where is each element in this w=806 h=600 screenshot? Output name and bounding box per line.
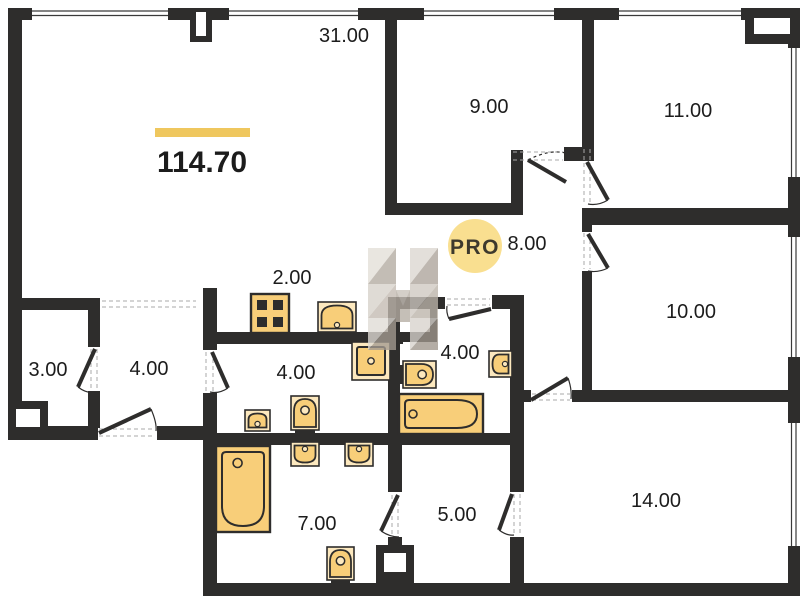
window-shape bbox=[168, 8, 172, 20]
window-shape bbox=[788, 44, 800, 181]
bath-c-sink-1-icon bbox=[291, 442, 319, 466]
shaft-notches-shape bbox=[754, 18, 790, 34]
walls-layer-shape bbox=[492, 295, 512, 309]
bath-c-tub-icon bbox=[216, 446, 270, 532]
window-shape bbox=[225, 8, 362, 20]
walls-layer-shape bbox=[388, 445, 402, 492]
bath-b-toilet-icon-shape bbox=[418, 370, 426, 378]
door-bathroom-4a bbox=[210, 352, 228, 393]
door-room-10-shape bbox=[588, 268, 608, 272]
room-area-label-kitchen-niche: 2.00 bbox=[273, 267, 312, 289]
door-bathroom-7-shape bbox=[381, 531, 399, 537]
total-area-label: 114.70 bbox=[157, 146, 247, 179]
stove-icon-shape bbox=[273, 317, 283, 327]
walls-layer-shape bbox=[524, 390, 531, 402]
window-shape bbox=[788, 419, 800, 423]
room-area-label-storage-3: 3.00 bbox=[29, 359, 68, 381]
room-area-label-room-5: 5.00 bbox=[438, 504, 477, 526]
window-shape bbox=[420, 8, 424, 20]
window-shape bbox=[788, 357, 800, 361]
bath-b-toilet-icon bbox=[393, 361, 436, 388]
stove-icon-shape bbox=[251, 294, 289, 333]
room-area-label-room-14: 14.00 bbox=[631, 490, 681, 512]
door-room-9-shape bbox=[528, 160, 566, 182]
window bbox=[615, 8, 745, 20]
door-room-9 bbox=[528, 152, 566, 182]
bath-c-sink-1-icon-shape bbox=[302, 446, 307, 451]
room-area-label-room-10: 10.00 bbox=[666, 301, 716, 323]
walls-layer-shape bbox=[203, 583, 800, 596]
bath-c-toilet-icon bbox=[327, 547, 354, 590]
window-shape bbox=[615, 8, 745, 20]
window bbox=[788, 233, 800, 361]
door-bathroom-7-shape bbox=[381, 495, 398, 531]
bath-b-tub-icon bbox=[399, 394, 483, 434]
walls-layer-shape bbox=[203, 393, 217, 433]
walls-layer-shape bbox=[788, 181, 800, 233]
shower-icon-shape bbox=[368, 358, 374, 364]
door-storage-3-shape bbox=[78, 349, 95, 387]
window-shape bbox=[788, 44, 800, 48]
room-area-label-bathroom-7: 7.00 bbox=[298, 513, 337, 535]
walls-layer-shape bbox=[572, 390, 587, 402]
window-shape bbox=[554, 8, 558, 20]
bath-c-toilet-icon-shape bbox=[336, 557, 344, 565]
stove-icon-shape bbox=[273, 300, 283, 310]
window-shape bbox=[28, 8, 32, 20]
window-shape bbox=[420, 8, 558, 20]
door-room-14 bbox=[531, 378, 571, 400]
room-area-label-bathroom-4b: 4.00 bbox=[441, 342, 480, 364]
floor-plan-page: PRO 114.70 31.009.0011.008.0010.002.003.… bbox=[0, 0, 806, 600]
walls-layer-shape bbox=[8, 298, 100, 310]
total-area-block: 114.70 bbox=[155, 128, 250, 179]
room-area-label-room-11: 11.00 bbox=[664, 100, 713, 122]
kitchen-sink-icon bbox=[318, 302, 356, 332]
room-area-label-entry-hall-4: 4.00 bbox=[130, 358, 169, 380]
pro-badge-label: PRO bbox=[450, 236, 500, 259]
window bbox=[788, 419, 800, 550]
walls-layer-shape bbox=[8, 8, 22, 438]
shaft-notches-shape bbox=[16, 409, 40, 427]
bath-a-toilet-icon bbox=[291, 396, 319, 440]
door-room-5-shape bbox=[499, 494, 512, 530]
shaft-notches-shape bbox=[196, 12, 206, 36]
room-area-label-bathroom-4a: 4.00 bbox=[277, 362, 316, 384]
walls-layer-shape bbox=[582, 8, 594, 147]
door-room-14-shape bbox=[531, 378, 568, 400]
bath-c-sink-2-icon bbox=[345, 442, 373, 466]
window-shape bbox=[741, 8, 745, 20]
door-storage-3 bbox=[78, 349, 95, 392]
door-bathroom-4b bbox=[447, 306, 491, 319]
window-shape bbox=[358, 8, 362, 20]
stove-icon-shape bbox=[257, 317, 267, 327]
walls-layer-shape bbox=[582, 271, 592, 390]
walls-layer-shape bbox=[385, 8, 397, 215]
walls-layer-shape bbox=[203, 288, 217, 350]
door-room-10 bbox=[588, 234, 608, 272]
window-shape bbox=[225, 8, 229, 20]
window bbox=[225, 8, 362, 20]
walls-layer-shape bbox=[157, 426, 205, 440]
walls-layer-shape bbox=[510, 400, 524, 492]
walls-layer-shape bbox=[582, 208, 788, 225]
window bbox=[788, 44, 800, 181]
room-area-label-living-room: 31.00 bbox=[319, 25, 369, 47]
walls-layer-shape bbox=[88, 310, 100, 347]
door-bathroom-4b-shape bbox=[447, 306, 449, 319]
room-area-label-hallway-8: 8.00 bbox=[508, 233, 547, 255]
entrance-door-shape bbox=[151, 409, 156, 431]
bath-b-sink-icon bbox=[489, 351, 512, 377]
window-shape bbox=[615, 8, 619, 20]
floor-plan-canvas: PRO 114.70 31.009.0011.008.0010.002.003.… bbox=[0, 0, 806, 600]
door-room-5-shape bbox=[499, 530, 514, 535]
door-room-9-shape bbox=[528, 152, 566, 160]
walls-layer-shape bbox=[587, 390, 800, 402]
door-room-14-shape bbox=[568, 378, 571, 399]
stove-icon bbox=[251, 294, 289, 333]
kitchen-sink-icon-shape bbox=[334, 322, 339, 327]
window-shape bbox=[788, 233, 800, 237]
door-bathroom-7 bbox=[381, 495, 399, 537]
bath-c-tub-icon-shape bbox=[216, 446, 270, 532]
door-room-10-shape bbox=[588, 234, 608, 268]
window-shape bbox=[788, 419, 800, 550]
window-shape bbox=[788, 177, 800, 181]
walls-layer-shape bbox=[510, 537, 524, 583]
walls-layer-shape bbox=[8, 8, 28, 20]
stove-icon-shape bbox=[257, 300, 267, 310]
window-shape bbox=[788, 233, 800, 361]
window-shape bbox=[788, 546, 800, 550]
accent-bar bbox=[155, 128, 250, 137]
walls-layer-shape bbox=[88, 391, 100, 428]
shaft-notches-shape bbox=[384, 553, 406, 572]
door-bathroom-4b-shape bbox=[449, 309, 491, 319]
walls-layer-shape bbox=[385, 203, 523, 215]
bath-c-sink-2-icon-shape bbox=[356, 446, 361, 451]
room-area-label-room-9: 9.00 bbox=[470, 96, 509, 118]
pro-badge: PRO bbox=[448, 219, 502, 273]
door-room-11-shape bbox=[588, 200, 608, 205]
bath-a-sink-icon bbox=[245, 410, 270, 431]
walls-layer-shape bbox=[582, 218, 592, 232]
window bbox=[420, 8, 558, 20]
window bbox=[28, 8, 172, 20]
bath-a-toilet-icon-shape bbox=[301, 406, 309, 414]
bath-a-sink-icon-shape bbox=[255, 421, 260, 426]
window-shape bbox=[28, 8, 172, 20]
bath-b-sink-icon-shape bbox=[502, 361, 507, 366]
door-room-5 bbox=[499, 494, 514, 535]
door-bathroom-4a-shape bbox=[212, 352, 228, 388]
